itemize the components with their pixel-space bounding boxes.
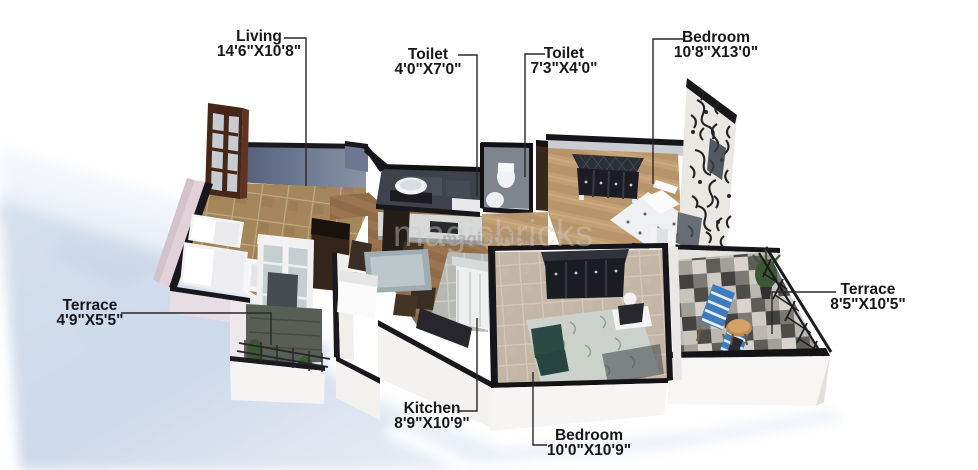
svg-text:magicbricks: magicbricks [442,229,541,248]
